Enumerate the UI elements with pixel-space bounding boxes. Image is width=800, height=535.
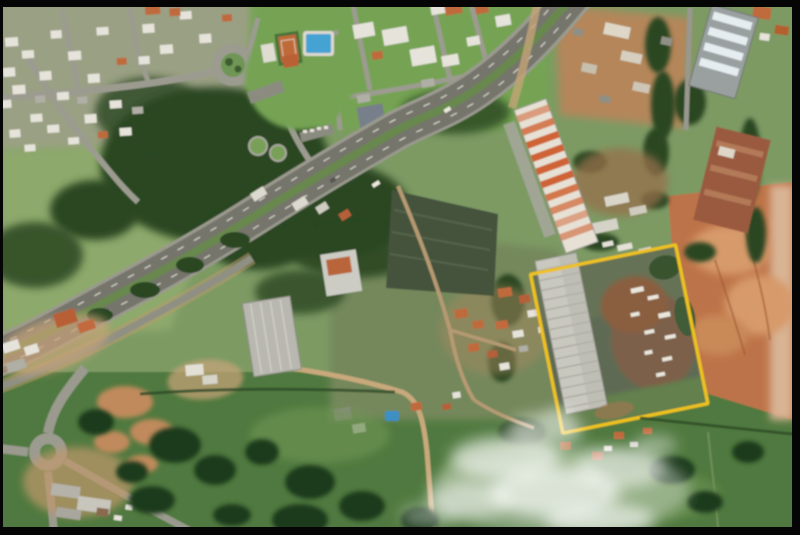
house-roof-gray [77, 96, 87, 104]
house-roof [50, 30, 62, 39]
house-roof-gray [132, 106, 143, 114]
tree-clump [149, 427, 201, 463]
house-roof-gray [35, 95, 45, 103]
house-roof-orange [614, 432, 624, 439]
house-roof [179, 11, 192, 20]
white-orange-house [320, 249, 362, 296]
house-roof [759, 33, 770, 41]
car [317, 127, 321, 130]
car [303, 130, 307, 133]
swimming-pool [306, 34, 331, 53]
house-roof [138, 56, 150, 65]
car [310, 129, 314, 132]
satellite-image-frame [0, 0, 800, 535]
house-roof [84, 114, 97, 124]
house-roof [30, 114, 43, 123]
house-roof-orange [98, 131, 108, 139]
frame-bottom [0, 527, 800, 535]
tree-clump [194, 455, 236, 485]
garden-circle [249, 137, 267, 155]
aerial-scene-svg [0, 0, 800, 535]
frame-right [792, 0, 800, 535]
tree-clump [176, 257, 204, 273]
house-roof-orange [519, 294, 531, 304]
house-roof [68, 137, 79, 145]
shed-roof [185, 364, 204, 377]
road-west [0, 448, 28, 452]
car [324, 126, 328, 129]
frame-left [0, 0, 3, 535]
smoke-puff [633, 435, 677, 455]
tree-clump [129, 486, 175, 514]
shed-roof [202, 375, 218, 385]
house-roof-orange [410, 402, 422, 412]
roundabout-bush [225, 58, 233, 66]
clubhouse-roof-orange [282, 54, 299, 68]
house-roof [88, 73, 101, 83]
tree-clump [339, 491, 385, 521]
tree-clump [130, 282, 160, 298]
house-roof [57, 92, 70, 101]
house-roof [119, 127, 132, 136]
tree-clump [220, 232, 250, 248]
garden-circle [270, 145, 286, 161]
house-roof [12, 85, 26, 95]
house-roof [142, 23, 155, 33]
tree-clump [116, 461, 148, 483]
house-roof-orange [472, 320, 484, 330]
tree-clump [245, 439, 279, 465]
house-roof [452, 391, 461, 398]
roundabout-island [221, 53, 245, 77]
frame-top [0, 0, 800, 7]
house-roof [24, 144, 35, 152]
backyard-pool [385, 411, 399, 421]
house-roof [68, 51, 82, 61]
club-lawn [245, 26, 355, 130]
roundabout-bush [235, 66, 242, 73]
tree-clump [684, 242, 716, 262]
dirt-yard [572, 148, 668, 216]
house-roof-orange [468, 343, 480, 353]
building-roof-brown [96, 507, 109, 517]
house-roof-orange [643, 428, 652, 434]
house-roof [47, 124, 60, 133]
tree-clump [78, 409, 114, 435]
house-roof [96, 27, 109, 36]
smoke-wisp [545, 407, 575, 423]
smoke-puff [400, 503, 460, 527]
house-roof [160, 44, 174, 54]
tree-clump [687, 491, 723, 513]
house-roof [109, 100, 122, 109]
house-roof [199, 34, 212, 44]
house-roof-orange [169, 8, 181, 17]
house-roof [5, 37, 19, 47]
tree-clump [285, 465, 335, 499]
house-roof [9, 129, 21, 138]
house-roof-orange [222, 14, 232, 22]
house-roof [3, 67, 16, 77]
tree-clump [213, 504, 251, 526]
tree-clump [732, 441, 764, 463]
house-roof [22, 50, 35, 59]
house-roof-orange [116, 57, 126, 65]
house-roof [39, 71, 52, 81]
